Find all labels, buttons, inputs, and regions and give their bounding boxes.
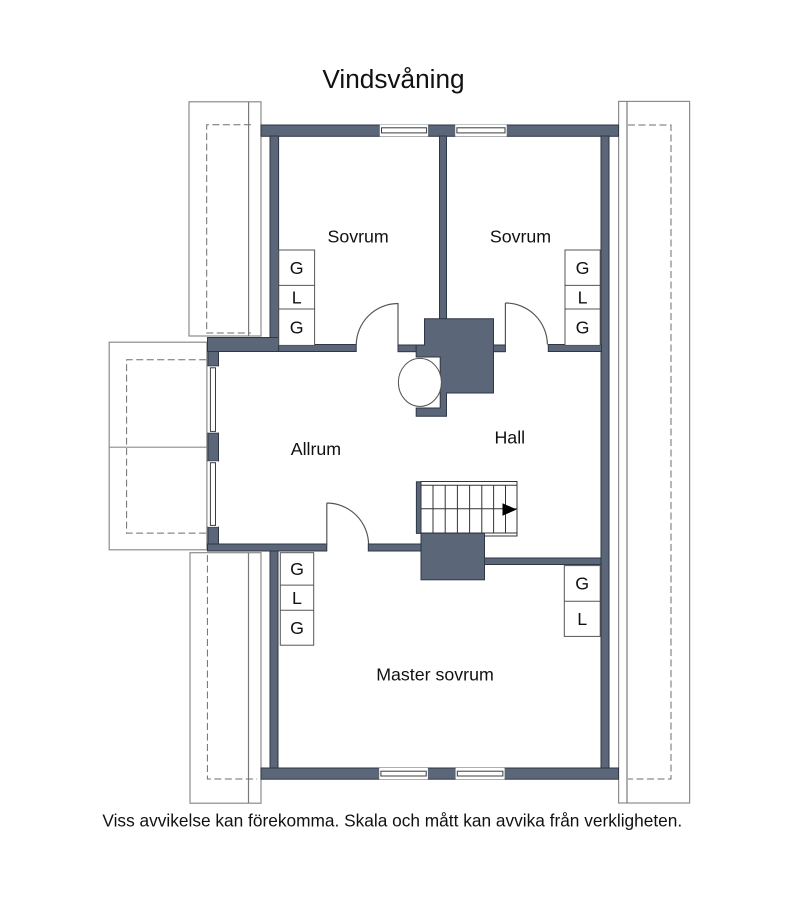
svg-text:G: G xyxy=(575,574,589,594)
svg-text:Sovrum: Sovrum xyxy=(327,226,388,246)
svg-text:G: G xyxy=(290,559,304,579)
svg-text:G: G xyxy=(290,258,304,278)
svg-text:G: G xyxy=(576,258,590,278)
svg-text:G: G xyxy=(290,318,304,338)
svg-text:L: L xyxy=(292,588,302,608)
svg-text:Vindsvåning: Vindsvåning xyxy=(322,64,464,94)
svg-text:Master sovrum: Master sovrum xyxy=(376,664,494,684)
svg-text:Sovrum: Sovrum xyxy=(490,226,551,246)
svg-text:Viss avvikelse kan förekomma.: Viss avvikelse kan förekomma. Skala och … xyxy=(102,811,682,831)
svg-text:L: L xyxy=(292,288,302,308)
svg-text:L: L xyxy=(578,288,588,308)
svg-text:L: L xyxy=(577,609,587,629)
svg-text:Hall: Hall xyxy=(494,428,525,448)
svg-text:G: G xyxy=(290,618,304,638)
svg-text:Allrum: Allrum xyxy=(291,439,341,459)
svg-text:G: G xyxy=(576,318,590,338)
